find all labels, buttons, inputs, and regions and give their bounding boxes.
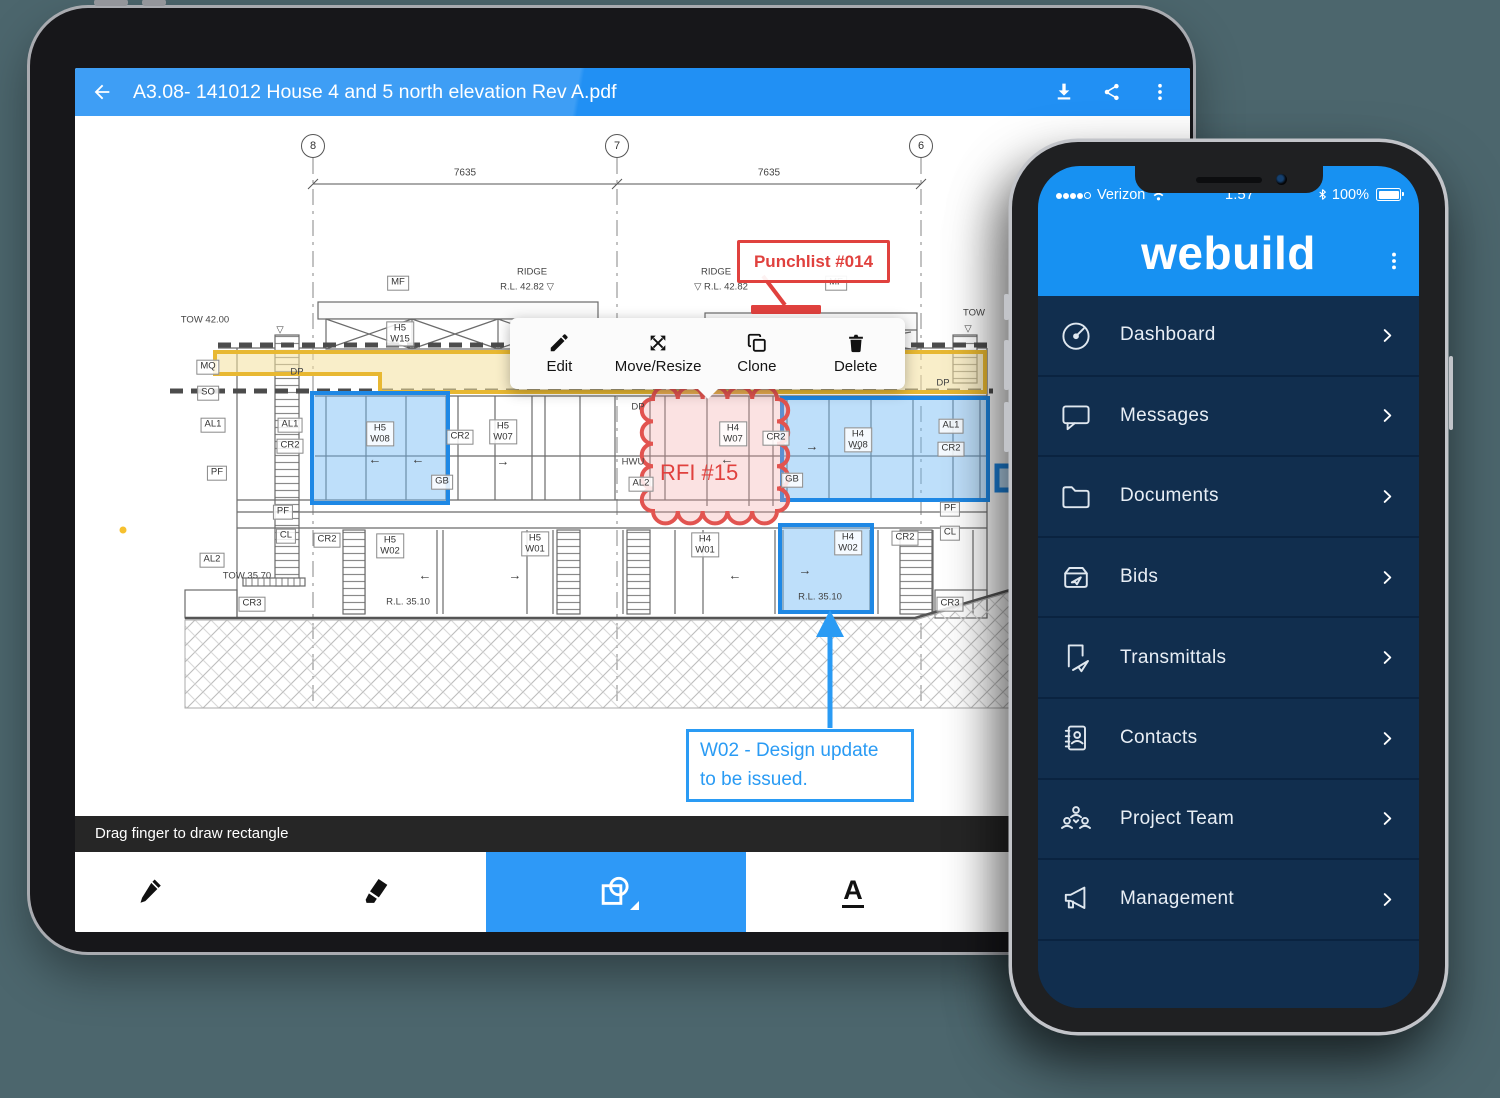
blueprint-tag-label: CR2 xyxy=(313,533,340,548)
phone-menu-item-label: Contacts xyxy=(1120,727,1380,749)
chevron-right-icon xyxy=(1380,328,1395,343)
blueprint-tag-label: MQ xyxy=(196,360,219,375)
blueprint-tag-label: CL xyxy=(940,526,960,541)
swing-arrow-label: → xyxy=(497,455,510,470)
phone-menu-item[interactable]: Transmittals xyxy=(1038,618,1419,699)
tablet-power-button xyxy=(142,0,166,6)
tool-options-indicator xyxy=(630,901,639,910)
project-team-icon xyxy=(1058,801,1094,837)
documents-icon xyxy=(1058,478,1094,514)
share-icon[interactable] xyxy=(1102,82,1122,102)
highlighter-icon xyxy=(359,875,393,909)
blueprint-tag-label: H5W07 xyxy=(489,419,517,444)
blueprint-tag-label: AL1 xyxy=(278,418,303,433)
blueprint-tag-label: H5W01 xyxy=(521,531,549,556)
phone-menu-item-label: Transmittals xyxy=(1120,647,1380,669)
bids-icon xyxy=(1058,559,1094,595)
blueprint-tag-label: ▽ xyxy=(276,326,283,337)
phone-menu-item-label: Dashboard xyxy=(1120,324,1380,346)
text-tool-button[interactable]: A xyxy=(793,852,913,932)
ground-hatch xyxy=(185,590,1010,708)
context-menu-item-label: Move/Resize xyxy=(615,358,702,375)
blueprint-tag-label: DP xyxy=(290,368,303,379)
phone-nav-menu: Dashboard Messages Documents Bids Transm… xyxy=(1038,296,1419,1008)
punchlist-annotation[interactable]: Punchlist #014 xyxy=(737,240,890,283)
blueprint-tag-label: CR3 xyxy=(238,597,265,612)
blueprint-tag-label: R.L. 42.82 ▽ xyxy=(500,283,554,294)
blueprint-tag-label: H5W08 xyxy=(366,421,394,446)
blueprint-tag-label: CR2 xyxy=(937,442,964,457)
blueprint-tag-label: H4W07 xyxy=(719,421,747,446)
stray-dot-annotation[interactable] xyxy=(120,527,127,534)
w02-callout-annotation[interactable]: W02 - Design update to be issued. xyxy=(686,729,914,802)
blueprint-tag-label: AL1 xyxy=(939,419,964,434)
blueprint-tag-label: TOW 42.00 xyxy=(181,316,229,327)
swing-arrow-label: → xyxy=(799,564,812,579)
grid-bubble: 8 xyxy=(301,134,325,158)
blueprint-tag-label: TOW xyxy=(963,309,985,320)
blueprint-tag-label: DP xyxy=(631,403,644,414)
blueprint-tag-label: CL xyxy=(276,529,296,544)
phone-volume-up-button xyxy=(1004,340,1009,390)
annotation-context-menu: Edit Move/Resize Clone Delete xyxy=(510,318,905,389)
delete-icon xyxy=(845,332,867,354)
swing-arrow-label: ← xyxy=(729,569,742,584)
dimension-label: 7635 xyxy=(454,168,476,179)
phone-menu-item-label: Bids xyxy=(1120,566,1380,588)
context-menu-item[interactable]: Delete xyxy=(806,318,905,389)
battery-percent: 100% xyxy=(1332,187,1369,203)
contacts-icon xyxy=(1058,720,1094,756)
highlighter-tool-button[interactable] xyxy=(316,852,436,932)
messages-icon xyxy=(1058,398,1094,434)
management-icon xyxy=(1058,881,1094,917)
phone-mute-switch xyxy=(1004,294,1009,320)
blueprint-tag-label: H4W01 xyxy=(691,532,719,557)
shape-tool-button[interactable] xyxy=(486,852,746,932)
pencil-icon xyxy=(548,332,570,354)
phone-menu-item[interactable]: Contacts xyxy=(1038,699,1419,780)
swing-arrow-label: → xyxy=(806,440,819,455)
context-menu-item[interactable]: Edit xyxy=(510,318,609,389)
phone-menu-item[interactable]: Management xyxy=(1038,860,1419,941)
blueprint-tag-label: H4W02 xyxy=(834,530,862,555)
chevron-right-icon xyxy=(1380,892,1395,907)
blueprint-tag-label: PF xyxy=(940,502,960,517)
pdf-viewer-header: A3.08- 141012 House 4 and 5 north elevat… xyxy=(75,68,1190,116)
blueprint-tag-label: AL1 xyxy=(201,418,226,433)
signal-strength-icon xyxy=(1056,187,1092,203)
blueprint-tag-label: TOW 35.70 xyxy=(223,572,271,583)
phone-notch xyxy=(1135,166,1323,193)
blueprint-tag-label: PF xyxy=(207,466,227,481)
swing-arrow-label: ← xyxy=(369,453,382,468)
overflow-menu-icon[interactable] xyxy=(1150,82,1170,102)
phone-menu-item-label: Messages xyxy=(1120,405,1380,427)
blueprint-tag-label: CR2 xyxy=(276,439,303,454)
shape-icon xyxy=(599,875,633,909)
swing-arrow-label: ← xyxy=(412,453,425,468)
blueprint-tag-label: RIDGE xyxy=(701,268,731,279)
blueprint-tag-label: SO xyxy=(197,386,219,401)
context-menu-item-label: Clone xyxy=(737,358,776,375)
callout-line-2: to be issued. xyxy=(700,766,900,795)
context-menu-item[interactable]: Move/Resize xyxy=(609,318,708,389)
scene-background: A3.08- 141012 House 4 and 5 north elevat… xyxy=(0,0,1500,1098)
blueprint-tag-label: PF xyxy=(273,505,293,520)
phone-device: Verizon 1:57 100% xyxy=(1012,142,1445,1032)
rfi-cloud-annotation[interactable] xyxy=(642,387,788,524)
blueprint-tag-label: DP xyxy=(936,379,949,390)
grid-bubble: 6 xyxy=(909,134,933,158)
chevron-right-icon xyxy=(1380,570,1395,585)
blueprint-tag-label: H5W02 xyxy=(376,533,404,558)
pen-tool-button[interactable] xyxy=(91,852,211,932)
move-resize-icon xyxy=(647,332,669,354)
phone-menu-item[interactable]: Project Team xyxy=(1038,780,1419,861)
window-highlight-annotation-1[interactable] xyxy=(312,393,448,503)
phone-overflow-menu-icon[interactable] xyxy=(1383,250,1405,272)
phone-menu-item-label: Project Team xyxy=(1120,808,1380,830)
phone-volume-down-button xyxy=(1004,402,1009,452)
pen-icon xyxy=(134,875,168,909)
clone-icon xyxy=(746,332,768,354)
phone-menu-item[interactable]: Messages xyxy=(1038,377,1419,458)
chevron-right-icon xyxy=(1380,650,1395,665)
download-icon[interactable] xyxy=(1054,82,1074,102)
blueprint-tag-label: ▽ R.L. 42.82 xyxy=(694,283,748,294)
blueprint-tag-label: GB xyxy=(431,475,453,490)
document-title: A3.08- 141012 House 4 and 5 north elevat… xyxy=(133,81,1054,104)
transmittals-icon xyxy=(1058,640,1094,676)
chevron-right-icon xyxy=(1380,731,1395,746)
phone-menu-item-label: Management xyxy=(1120,888,1380,910)
context-menu-item-label: Edit xyxy=(546,358,572,375)
swing-arrow-label: ← xyxy=(419,569,432,584)
bluetooth-icon xyxy=(1317,187,1328,202)
header-actions xyxy=(1054,82,1170,102)
blueprint-tag-label: GB xyxy=(781,473,803,488)
callout-line-1: W02 - Design update xyxy=(700,737,900,766)
blueprint-tag-label: AL2 xyxy=(629,477,654,492)
blueprint-tag-label: RIDGE xyxy=(517,268,547,279)
grid-bubble: 7 xyxy=(605,134,629,158)
phone-power-button xyxy=(1449,356,1454,430)
blueprint-tag-label: CR3 xyxy=(936,597,963,612)
swing-arrow-label: → xyxy=(851,440,864,455)
webuild-logo: webuild xyxy=(1038,226,1419,280)
blueprint-tag-label: ▽ xyxy=(964,325,971,336)
chevron-right-icon xyxy=(1380,811,1395,826)
phone-menu-item[interactable]: Dashboard xyxy=(1038,296,1419,377)
blueprint-tag-label: CR2 xyxy=(446,430,473,445)
window-highlight-annotation-4[interactable] xyxy=(997,466,1013,490)
blueprint-tag-label: R.L. 35.10 xyxy=(386,598,430,609)
tablet-volume-button xyxy=(94,0,128,6)
phone-camera xyxy=(1276,174,1287,185)
blueprint-tag-label: CR2 xyxy=(891,531,918,546)
blueprint-tag-label: MF xyxy=(387,276,409,291)
back-arrow-icon[interactable] xyxy=(91,81,113,103)
dashboard-icon xyxy=(1058,317,1094,353)
chevron-right-icon xyxy=(1380,489,1395,504)
blueprint-tag-label: HWU xyxy=(622,458,645,469)
battery-icon xyxy=(1376,188,1401,201)
context-menu-item[interactable]: Clone xyxy=(708,318,807,389)
dimension-label: 7635 xyxy=(758,168,780,179)
swing-arrow-label: → xyxy=(509,569,522,584)
phone-menu-item-label: Documents xyxy=(1120,485,1380,507)
phone-screen: Verizon 1:57 100% xyxy=(1038,166,1419,1008)
phone-menu-item[interactable]: Bids xyxy=(1038,538,1419,619)
text-tool-icon: A xyxy=(842,876,864,907)
blueprint-tag-label: H5W15 xyxy=(386,321,414,346)
chevron-right-icon xyxy=(1380,408,1395,423)
context-menu-item-label: Delete xyxy=(834,358,877,375)
blueprint-tag-label: CR2 xyxy=(762,431,789,446)
rfi-annotation-label[interactable]: RFI #15 xyxy=(660,460,738,486)
blueprint-tag-label: R.L. 35.10 xyxy=(798,593,842,604)
blueprint-tag-label: AL2 xyxy=(200,553,225,568)
carrier-label: Verizon xyxy=(1097,187,1145,203)
phone-speaker xyxy=(1196,177,1262,183)
phone-menu-item[interactable]: Documents xyxy=(1038,457,1419,538)
